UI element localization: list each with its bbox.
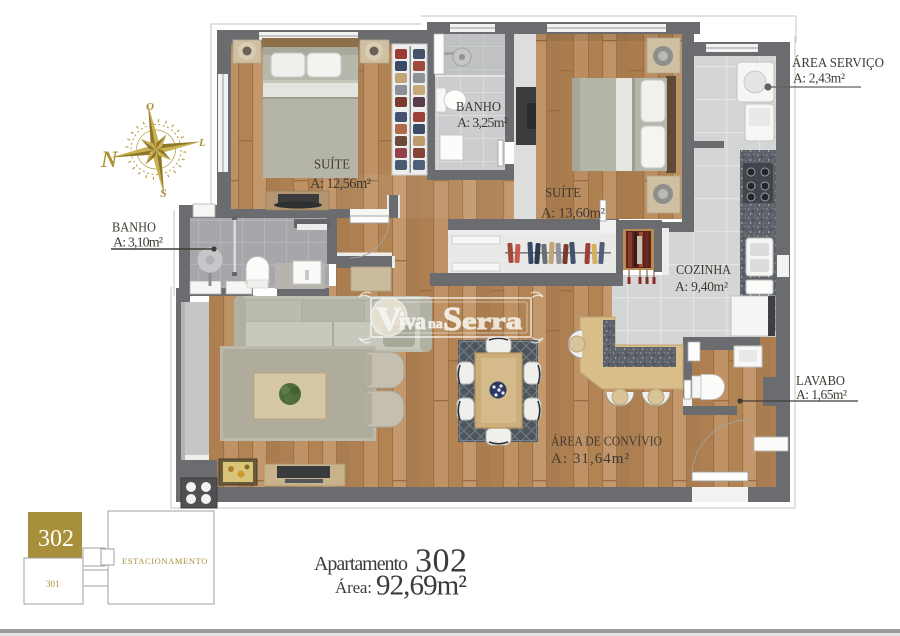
svg-text:A: 3,25m²: A: 3,25m² <box>457 116 508 131</box>
svg-text:301: 301 <box>46 579 60 589</box>
svg-text:S: S <box>160 186 167 200</box>
svg-text:na: na <box>428 317 443 332</box>
svg-text:BANHO: BANHO <box>112 221 156 236</box>
svg-text:A: 3,10m²: A: 3,10m² <box>113 236 163 251</box>
svg-text:O: O <box>146 101 154 113</box>
svg-text:ÁREA DE CONVÍVIO: ÁREA DE CONVÍVIO <box>551 433 662 450</box>
svg-text:A: 9,40m²: A: 9,40m² <box>675 279 728 294</box>
svg-text:A: 2,43m²: A: 2,43m² <box>793 71 845 86</box>
svg-text:A: 1,65m²: A: 1,65m² <box>796 387 847 402</box>
svg-text:SUÍTE: SUÍTE <box>314 156 350 173</box>
svg-text:ÁREA SERVIÇO: ÁREA SERVIÇO <box>792 55 884 70</box>
svg-text:A: 31,64m²: A: 31,64m² <box>551 451 630 467</box>
svg-text:SUÍTE: SUÍTE <box>545 184 581 201</box>
svg-text:BANHO: BANHO <box>456 99 501 114</box>
svg-text:S: S <box>443 301 462 338</box>
svg-text:N: N <box>100 147 119 172</box>
svg-text:A: 13,60m²: A: 13,60m² <box>541 206 606 222</box>
svg-text:erra: erra <box>462 309 522 335</box>
svg-text:92,69m²: 92,69m² <box>376 570 467 602</box>
svg-text:302: 302 <box>38 526 74 552</box>
svg-text:A: 12,56m²: A: 12,56m² <box>310 176 372 192</box>
svg-text:Área:: Área: <box>335 578 372 597</box>
svg-text:LAVABO: LAVABO <box>796 373 845 388</box>
svg-text:iva: iva <box>399 309 426 335</box>
svg-text:ESTACIONAMENTO: ESTACIONAMENTO <box>122 556 208 566</box>
svg-text:L: L <box>198 137 206 149</box>
svg-text:COZINHA: COZINHA <box>676 262 731 277</box>
